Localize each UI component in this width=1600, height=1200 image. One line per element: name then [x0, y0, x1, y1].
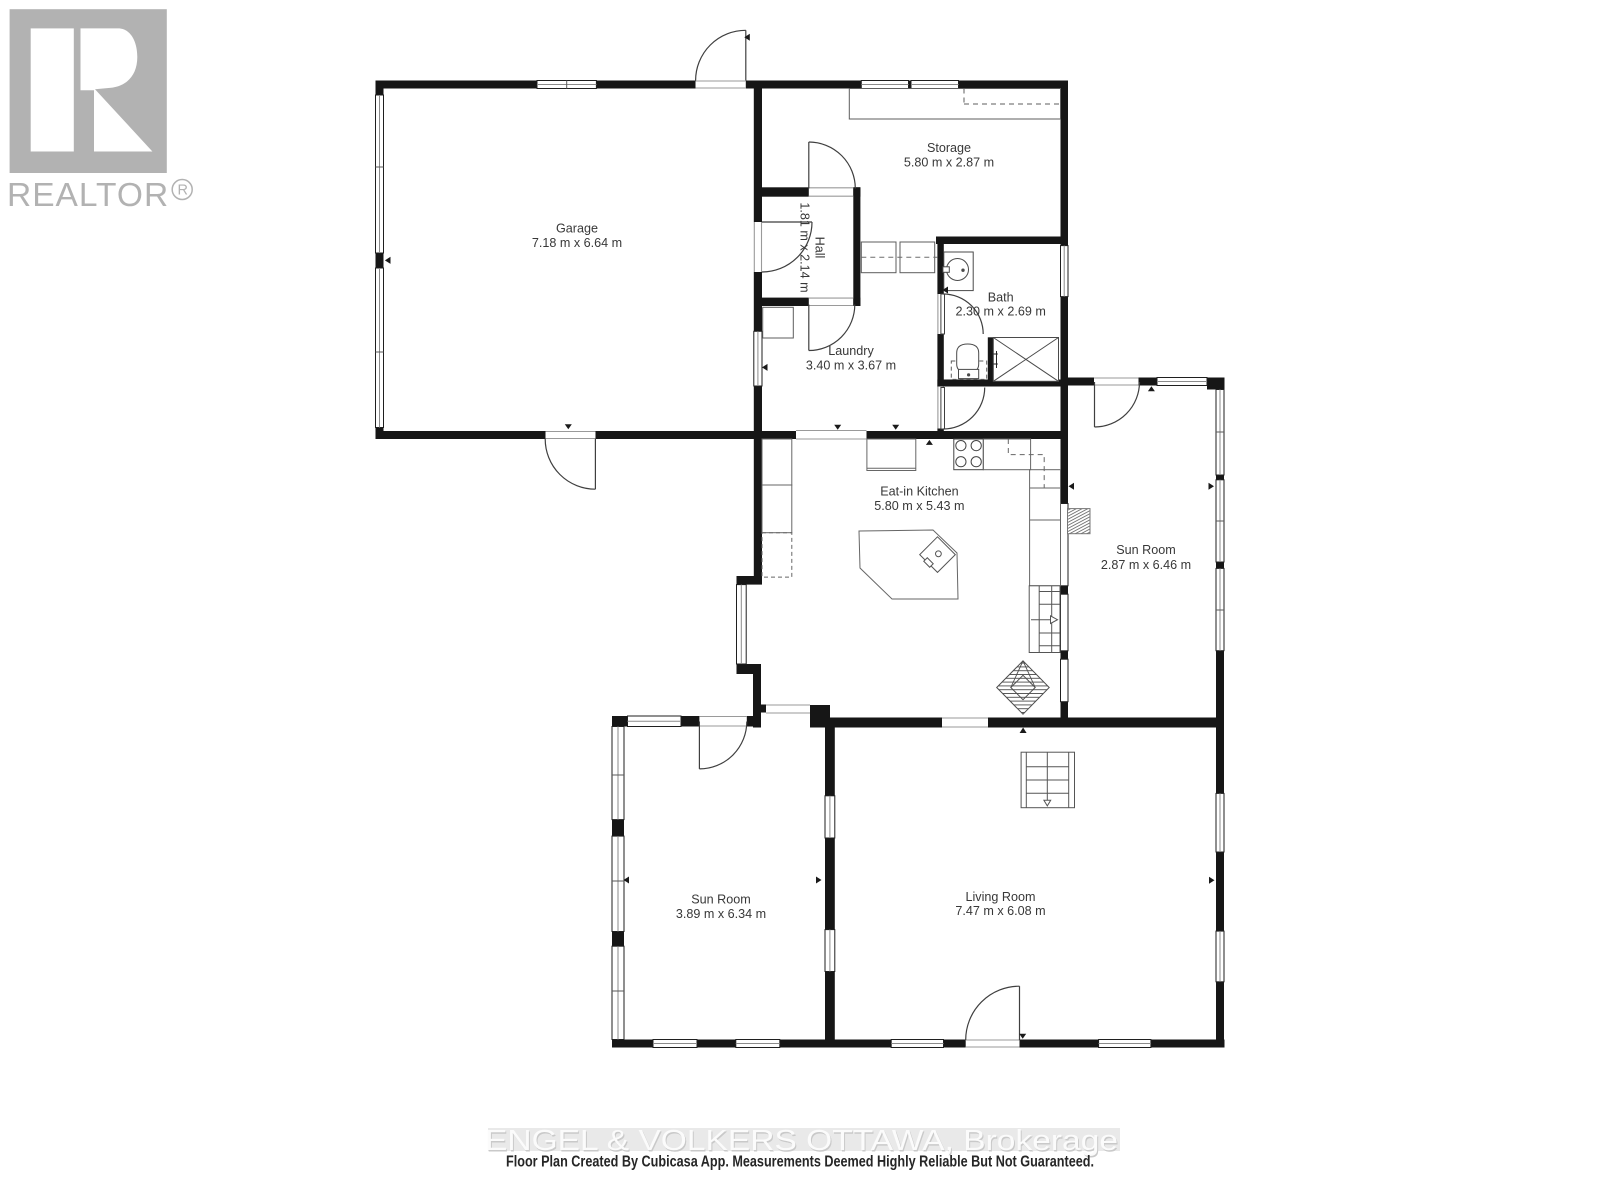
svg-text:3.40 m x 3.67 m: 3.40 m x 3.67 m: [806, 358, 896, 372]
svg-text:Sun Room: Sun Room: [1116, 543, 1176, 557]
svg-text:7.18 m x 6.64 m: 7.18 m x 6.64 m: [532, 236, 622, 250]
svg-text:5.80 m x 5.43 m: 5.80 m x 5.43 m: [874, 499, 964, 513]
svg-text:Storage: Storage: [927, 141, 971, 155]
svg-text:R: R: [178, 183, 188, 199]
svg-text:REALTOR: REALTOR: [7, 177, 169, 214]
svg-text:Living Room: Living Room: [966, 890, 1036, 904]
svg-text:Laundry: Laundry: [828, 344, 874, 358]
svg-text:7.47 m x 6.08 m: 7.47 m x 6.08 m: [955, 904, 1045, 918]
svg-text:Eat-in Kitchen: Eat-in Kitchen: [880, 485, 958, 499]
svg-text:3.89 m x 6.34 m: 3.89 m x 6.34 m: [676, 907, 766, 921]
svg-text:2.30 m x 2.69 m: 2.30 m x 2.69 m: [956, 305, 1046, 319]
svg-text:Bath: Bath: [988, 291, 1014, 305]
svg-text:Sun Room: Sun Room: [691, 893, 751, 907]
svg-text:Garage: Garage: [556, 222, 598, 236]
svg-text:5.80 m x 2.87 m: 5.80 m x 2.87 m: [904, 156, 994, 170]
svg-text:1.81 m x 2.14 m: 1.81 m x 2.14 m: [798, 202, 812, 292]
svg-text:Hall: Hall: [812, 237, 826, 259]
svg-text:Floor Plan Created By Cubicasa: Floor Plan Created By Cubicasa App. Meas…: [506, 1153, 1094, 1170]
svg-text:2.87 m x 6.46 m: 2.87 m x 6.46 m: [1101, 558, 1191, 572]
